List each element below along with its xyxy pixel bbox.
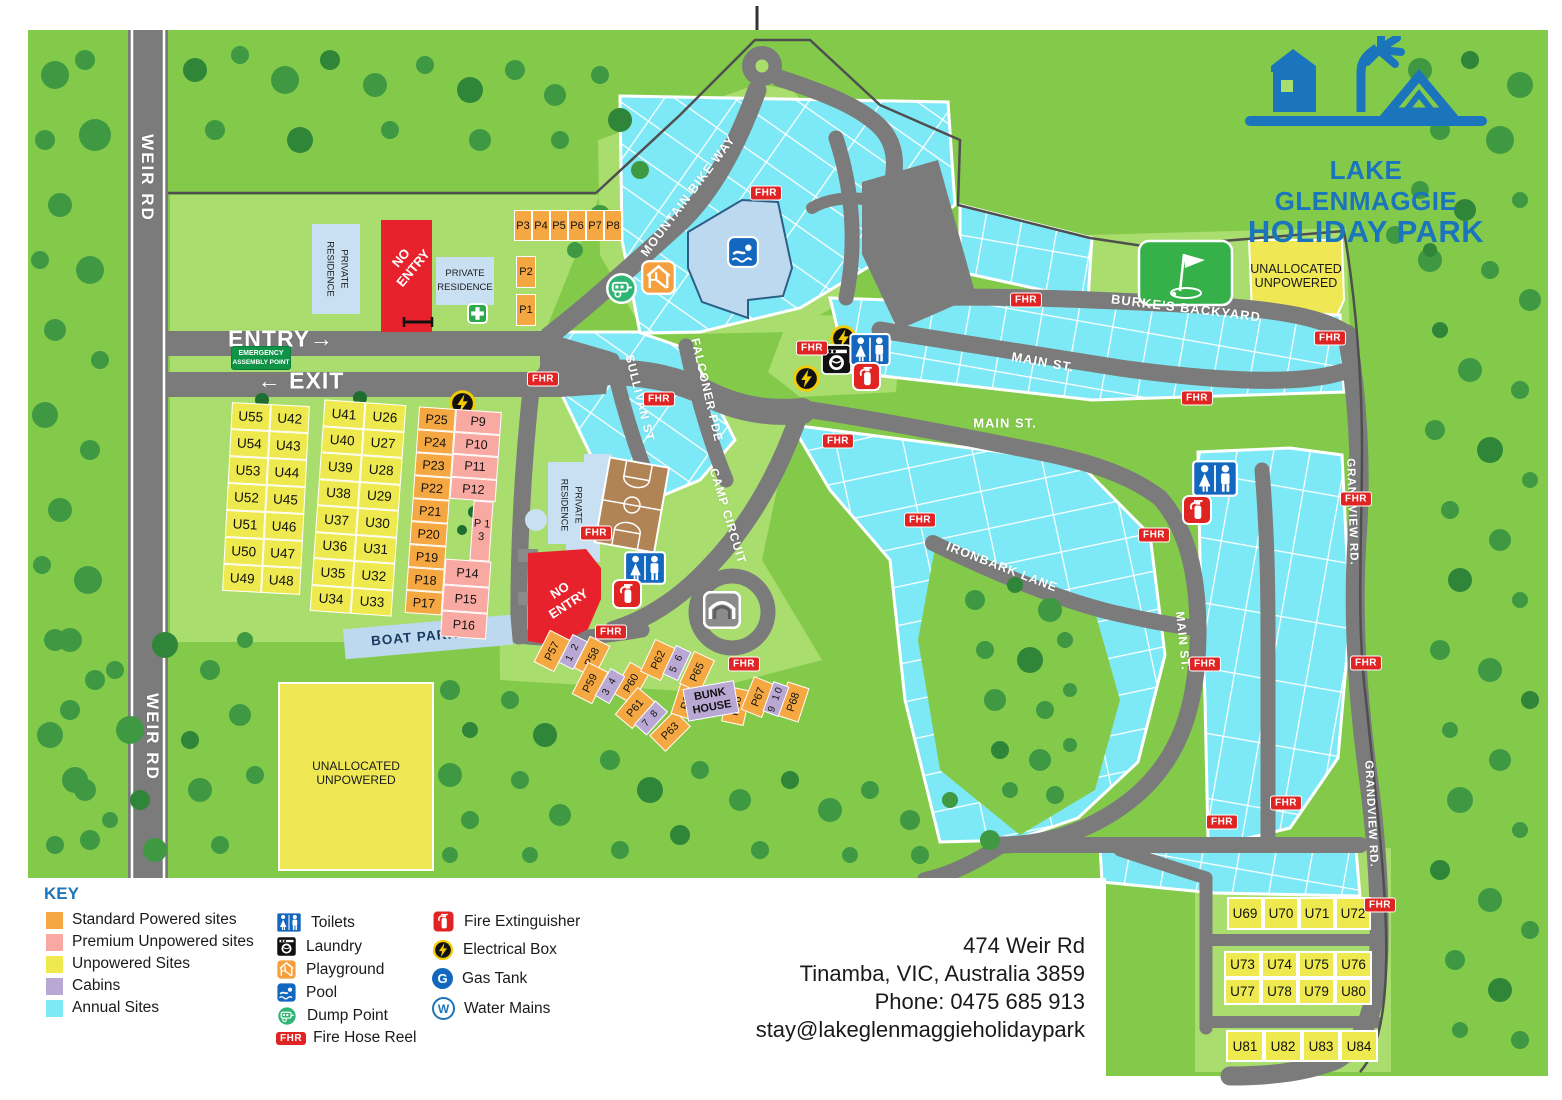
contact-info: 474 Weir RdTinamba, VIC, Australia 3859P… xyxy=(756,932,1085,1044)
site-cell[interactable]: U26 xyxy=(364,402,407,431)
site-cell[interactable]: P 1 3 xyxy=(469,500,493,561)
site-cell[interactable]: U77 xyxy=(1224,978,1261,1005)
site-cell[interactable]: U81 xyxy=(1226,1030,1264,1062)
key-row-laundry: Laundry xyxy=(276,936,362,957)
road-label-weir-rd: WEIR RD xyxy=(137,134,157,222)
fire-hose-reel-icon: FHR xyxy=(1340,492,1372,507)
key-row-playground: Playground xyxy=(276,959,384,980)
site-cell[interactable]: U71 xyxy=(1299,897,1335,930)
site-cell[interactable]: U44 xyxy=(267,458,307,487)
site-cell[interactable]: P1 xyxy=(516,294,536,326)
fire-hose-reel-icon: FHR xyxy=(1206,815,1238,830)
site-cell[interactable]: P16 xyxy=(440,610,488,639)
site-cell[interactable]: U76 xyxy=(1335,951,1372,978)
key-swatch-row: Cabins xyxy=(46,977,254,995)
site-cell[interactable]: P18 xyxy=(406,567,445,593)
site-cell[interactable]: P20 xyxy=(409,521,448,547)
park-logo: LAKE GLENMAGGIE HOLIDAY PARK xyxy=(1238,36,1494,250)
site-cell[interactable]: U75 xyxy=(1298,951,1335,978)
swatch xyxy=(46,1000,63,1017)
dump-point-icon xyxy=(607,274,635,302)
road-label-exit: ← EXIT xyxy=(258,368,345,395)
fire-hose-reel-icon: FHR xyxy=(643,392,675,407)
site-cell[interactable]: U55 xyxy=(231,402,271,431)
playground-icon xyxy=(276,959,297,980)
toilets-icon xyxy=(276,912,302,933)
site-cell[interactable]: P10 xyxy=(453,431,500,457)
fire-hose-reel-icon: FHR xyxy=(595,625,627,640)
site-cell[interactable]: P8 xyxy=(604,210,622,241)
site-cell[interactable]: U46 xyxy=(264,512,304,541)
camp-shelter-icon xyxy=(704,592,740,628)
fire-hose-reel-icon: FHR xyxy=(1181,391,1213,406)
site-cell[interactable]: P2 xyxy=(516,256,536,288)
site-cell[interactable]: P23 xyxy=(414,452,453,478)
swatch xyxy=(46,934,63,951)
unpowered-grid-b: U41U40U39U38U37U36U35U34 U26U27U28U29U30… xyxy=(310,399,407,616)
site-cell[interactable]: U80 xyxy=(1335,978,1372,1005)
fire-hose-reel-icon: FHR xyxy=(1138,528,1170,543)
site-cell[interactable]: U45 xyxy=(265,485,305,514)
park-map: WEIR RD WEIR RD ENTRY→ ← EXIT MOUNTAIN B… xyxy=(0,0,1562,1100)
key-row-fire-hose-reel: FHR Fire Hose Reel xyxy=(276,1029,416,1047)
unallocated-label: UNALLOCATEDUNPOWERED xyxy=(1250,262,1341,290)
key-swatch-label: Standard Powered sites xyxy=(72,911,237,929)
fire-hose-reel-icon: FHR xyxy=(822,434,854,449)
key-swatch-row: Premium Unpowered sites xyxy=(46,933,254,951)
fire-hose-reel-icon: FHR xyxy=(527,372,559,387)
logo-icon xyxy=(1243,36,1489,148)
powered-premium-grid: P25P24P23P22P21P20P19P18P17 P9P10P11P12 … xyxy=(403,406,502,639)
site-cell[interactable]: U40 xyxy=(321,426,364,455)
fire-hose-reel-icon: FHR xyxy=(1350,656,1382,671)
private-residence-label: PRIVATE RESIDENCE xyxy=(322,230,351,308)
key-swatch-row: Annual Sites xyxy=(46,999,254,1017)
key-swatch-label: Unpowered Sites xyxy=(72,955,190,973)
site-cell[interactable]: U36 xyxy=(313,532,356,561)
gas-tank-icon: G xyxy=(432,968,453,989)
site-cell[interactable]: U50 xyxy=(224,537,264,566)
u-sites-row-2: U73U74U75U76 xyxy=(1224,951,1372,978)
site-cell[interactable]: U32 xyxy=(352,561,395,590)
site-cell[interactable]: P11 xyxy=(451,454,498,480)
unallocated-label: UNALLOCATEDUNPOWERED xyxy=(312,759,400,787)
swatch xyxy=(46,956,63,973)
dump-point-icon xyxy=(276,1005,298,1027)
site-cell[interactable]: U38 xyxy=(317,479,360,508)
key-row-toilets: Toilets xyxy=(276,912,355,933)
logo-line-1: LAKE GLENMAGGIE xyxy=(1238,155,1494,217)
site-cell[interactable]: U34 xyxy=(310,584,353,613)
electrical-box-icon xyxy=(795,367,819,391)
u-sites-row-1: U69U70U71U72 xyxy=(1227,897,1371,930)
u-sites-row-3: U77U78U79U80 xyxy=(1224,978,1372,1005)
site-cell[interactable]: U29 xyxy=(358,482,401,511)
contact-line: Phone: 0475 685 913 xyxy=(756,988,1085,1016)
private-residence-label: PRIVATE RESIDENCE xyxy=(437,267,493,296)
site-cell[interactable]: U51 xyxy=(225,510,265,539)
pool-icon xyxy=(276,982,297,1003)
site-cell[interactable]: P3 xyxy=(514,210,532,241)
site-cell[interactable]: U84 xyxy=(1340,1030,1378,1062)
site-cell[interactable]: U54 xyxy=(229,429,269,458)
fire-hose-reel-icon: FHR xyxy=(728,657,760,672)
site-cell[interactable]: U31 xyxy=(354,534,397,563)
site-cell[interactable]: U49 xyxy=(222,564,262,593)
key-swatch-label: Cabins xyxy=(72,977,120,995)
site-cell[interactable]: U53 xyxy=(228,456,268,485)
site-cell[interactable]: P15 xyxy=(442,585,490,614)
site-cell[interactable]: P6 xyxy=(568,210,586,241)
key-row-pool: Pool xyxy=(276,982,337,1003)
site-cell[interactable]: U69 xyxy=(1227,897,1263,930)
fire-extinguisher-icon xyxy=(432,910,455,933)
fire-extinguisher-icon xyxy=(853,363,880,390)
fire-hose-reel-icon: FHR xyxy=(1364,898,1396,913)
site-cell[interactable]: U41 xyxy=(323,399,366,428)
site-cell[interactable]: U33 xyxy=(351,587,394,616)
key-row-dump-point: Dump Point xyxy=(276,1005,388,1027)
site-cell[interactable]: U82 xyxy=(1264,1030,1302,1062)
toilets-icon xyxy=(1193,461,1237,496)
fire-hose-reel-icon: FHR xyxy=(904,513,936,528)
fire-extinguisher-icon xyxy=(1183,496,1211,524)
fire-hose-reel-icon: FHR xyxy=(796,341,828,356)
fire-hose-reel-icon: FHR xyxy=(1189,657,1221,672)
key-swatch-label: Annual Sites xyxy=(72,999,159,1017)
site-cell[interactable]: U39 xyxy=(319,452,362,481)
site-cell[interactable]: U73 xyxy=(1224,951,1261,978)
site-cell[interactable]: U48 xyxy=(261,566,301,595)
key-title: KEY xyxy=(44,884,79,904)
first-aid-icon xyxy=(468,304,487,323)
site-cell[interactable]: U52 xyxy=(226,483,266,512)
site-cell[interactable]: U42 xyxy=(270,404,310,433)
site-cell[interactable]: U70 xyxy=(1263,897,1299,930)
unpowered-grid-a: U55U54U53U52U51U50U49 U42U43U44U45U46U47… xyxy=(222,402,310,595)
site-cell[interactable]: U83 xyxy=(1302,1030,1340,1062)
fire-hose-reel-icon: FHR xyxy=(276,1032,306,1045)
swatch xyxy=(46,978,63,995)
key-swatch-list: Standard Powered sites Premium Unpowered… xyxy=(46,911,254,1021)
site-cell[interactable]: P9 xyxy=(454,409,501,435)
key-swatch-row: Standard Powered sites xyxy=(46,911,254,929)
site-cell[interactable]: P14 xyxy=(444,559,492,588)
fire-hose-reel-icon: FHR xyxy=(1270,796,1302,811)
fire-hose-reel-icon: FHR xyxy=(1010,293,1042,308)
key-swatch-label: Premium Unpowered sites xyxy=(72,933,254,951)
site-cell[interactable]: P5 xyxy=(550,210,568,241)
site-cell[interactable]: P22 xyxy=(413,475,452,501)
emergency-assembly-sign: EMERGENCY ASSEMBLY POINT xyxy=(231,346,291,370)
contact-line: stay@lakeglenmaggieholidaypark xyxy=(756,1016,1085,1044)
key-row-water-mains: W Water Mains xyxy=(432,997,550,1020)
site-cell[interactable]: P25 xyxy=(417,406,456,432)
fire-hose-reel-icon: FHR xyxy=(750,186,782,201)
fire-extinguisher-icon xyxy=(613,580,641,608)
playground-icon xyxy=(642,261,675,294)
site-cell[interactable]: U43 xyxy=(268,431,308,460)
site-cell[interactable]: U30 xyxy=(356,508,399,537)
site-cell[interactable]: P7 xyxy=(586,210,604,241)
water-mains-icon: W xyxy=(432,997,455,1020)
site-cell[interactable]: P19 xyxy=(408,544,447,570)
electrical-box-icon xyxy=(432,939,454,961)
site-cell[interactable]: P21 xyxy=(411,498,450,524)
powered-top-row: P3P4P5P6P7P8 xyxy=(514,210,622,241)
site-cell[interactable]: U78 xyxy=(1261,978,1298,1005)
toilets-icon xyxy=(850,334,889,365)
key-row-electrical-box: Electrical Box xyxy=(432,939,557,961)
site-cell[interactable]: U79 xyxy=(1298,978,1335,1005)
contact-line: 474 Weir Rd xyxy=(756,932,1085,960)
laundry-icon xyxy=(276,936,297,957)
site-cell[interactable]: U27 xyxy=(362,429,405,458)
key-row-gas-tank: G Gas Tank xyxy=(432,968,527,989)
site-cell[interactable]: U28 xyxy=(360,455,403,484)
key-swatch-row: Unpowered Sites xyxy=(46,955,254,973)
site-cell[interactable]: P4 xyxy=(532,210,550,241)
contact-line: Tinamba, VIC, Australia 3859 xyxy=(756,960,1085,988)
site-cell[interactable]: U47 xyxy=(262,539,302,568)
site-cell[interactable]: P17 xyxy=(405,590,444,616)
site-cell[interactable]: U37 xyxy=(315,505,358,534)
fire-hose-reel-icon: FHR xyxy=(1314,331,1346,346)
road-label-weir-rd: WEIR RD xyxy=(142,693,162,781)
key-row-fire-extinguisher: Fire Extinguisher xyxy=(432,910,580,933)
site-cell[interactable]: U35 xyxy=(312,558,355,587)
road-label-main-st: MAIN ST. xyxy=(973,416,1037,431)
site-cell[interactable]: P24 xyxy=(416,429,455,455)
site-cell[interactable]: P12 xyxy=(450,476,497,502)
site-cell[interactable]: U74 xyxy=(1261,951,1298,978)
pool-icon xyxy=(728,237,758,267)
fire-hose-reel-icon: FHR xyxy=(580,526,612,541)
swatch xyxy=(46,912,63,929)
u-sites-row-4: U81U82U83U84 xyxy=(1226,1030,1378,1062)
logo-line-2: HOLIDAY PARK xyxy=(1238,214,1494,250)
powered-top-col: P2P1 xyxy=(516,256,536,326)
